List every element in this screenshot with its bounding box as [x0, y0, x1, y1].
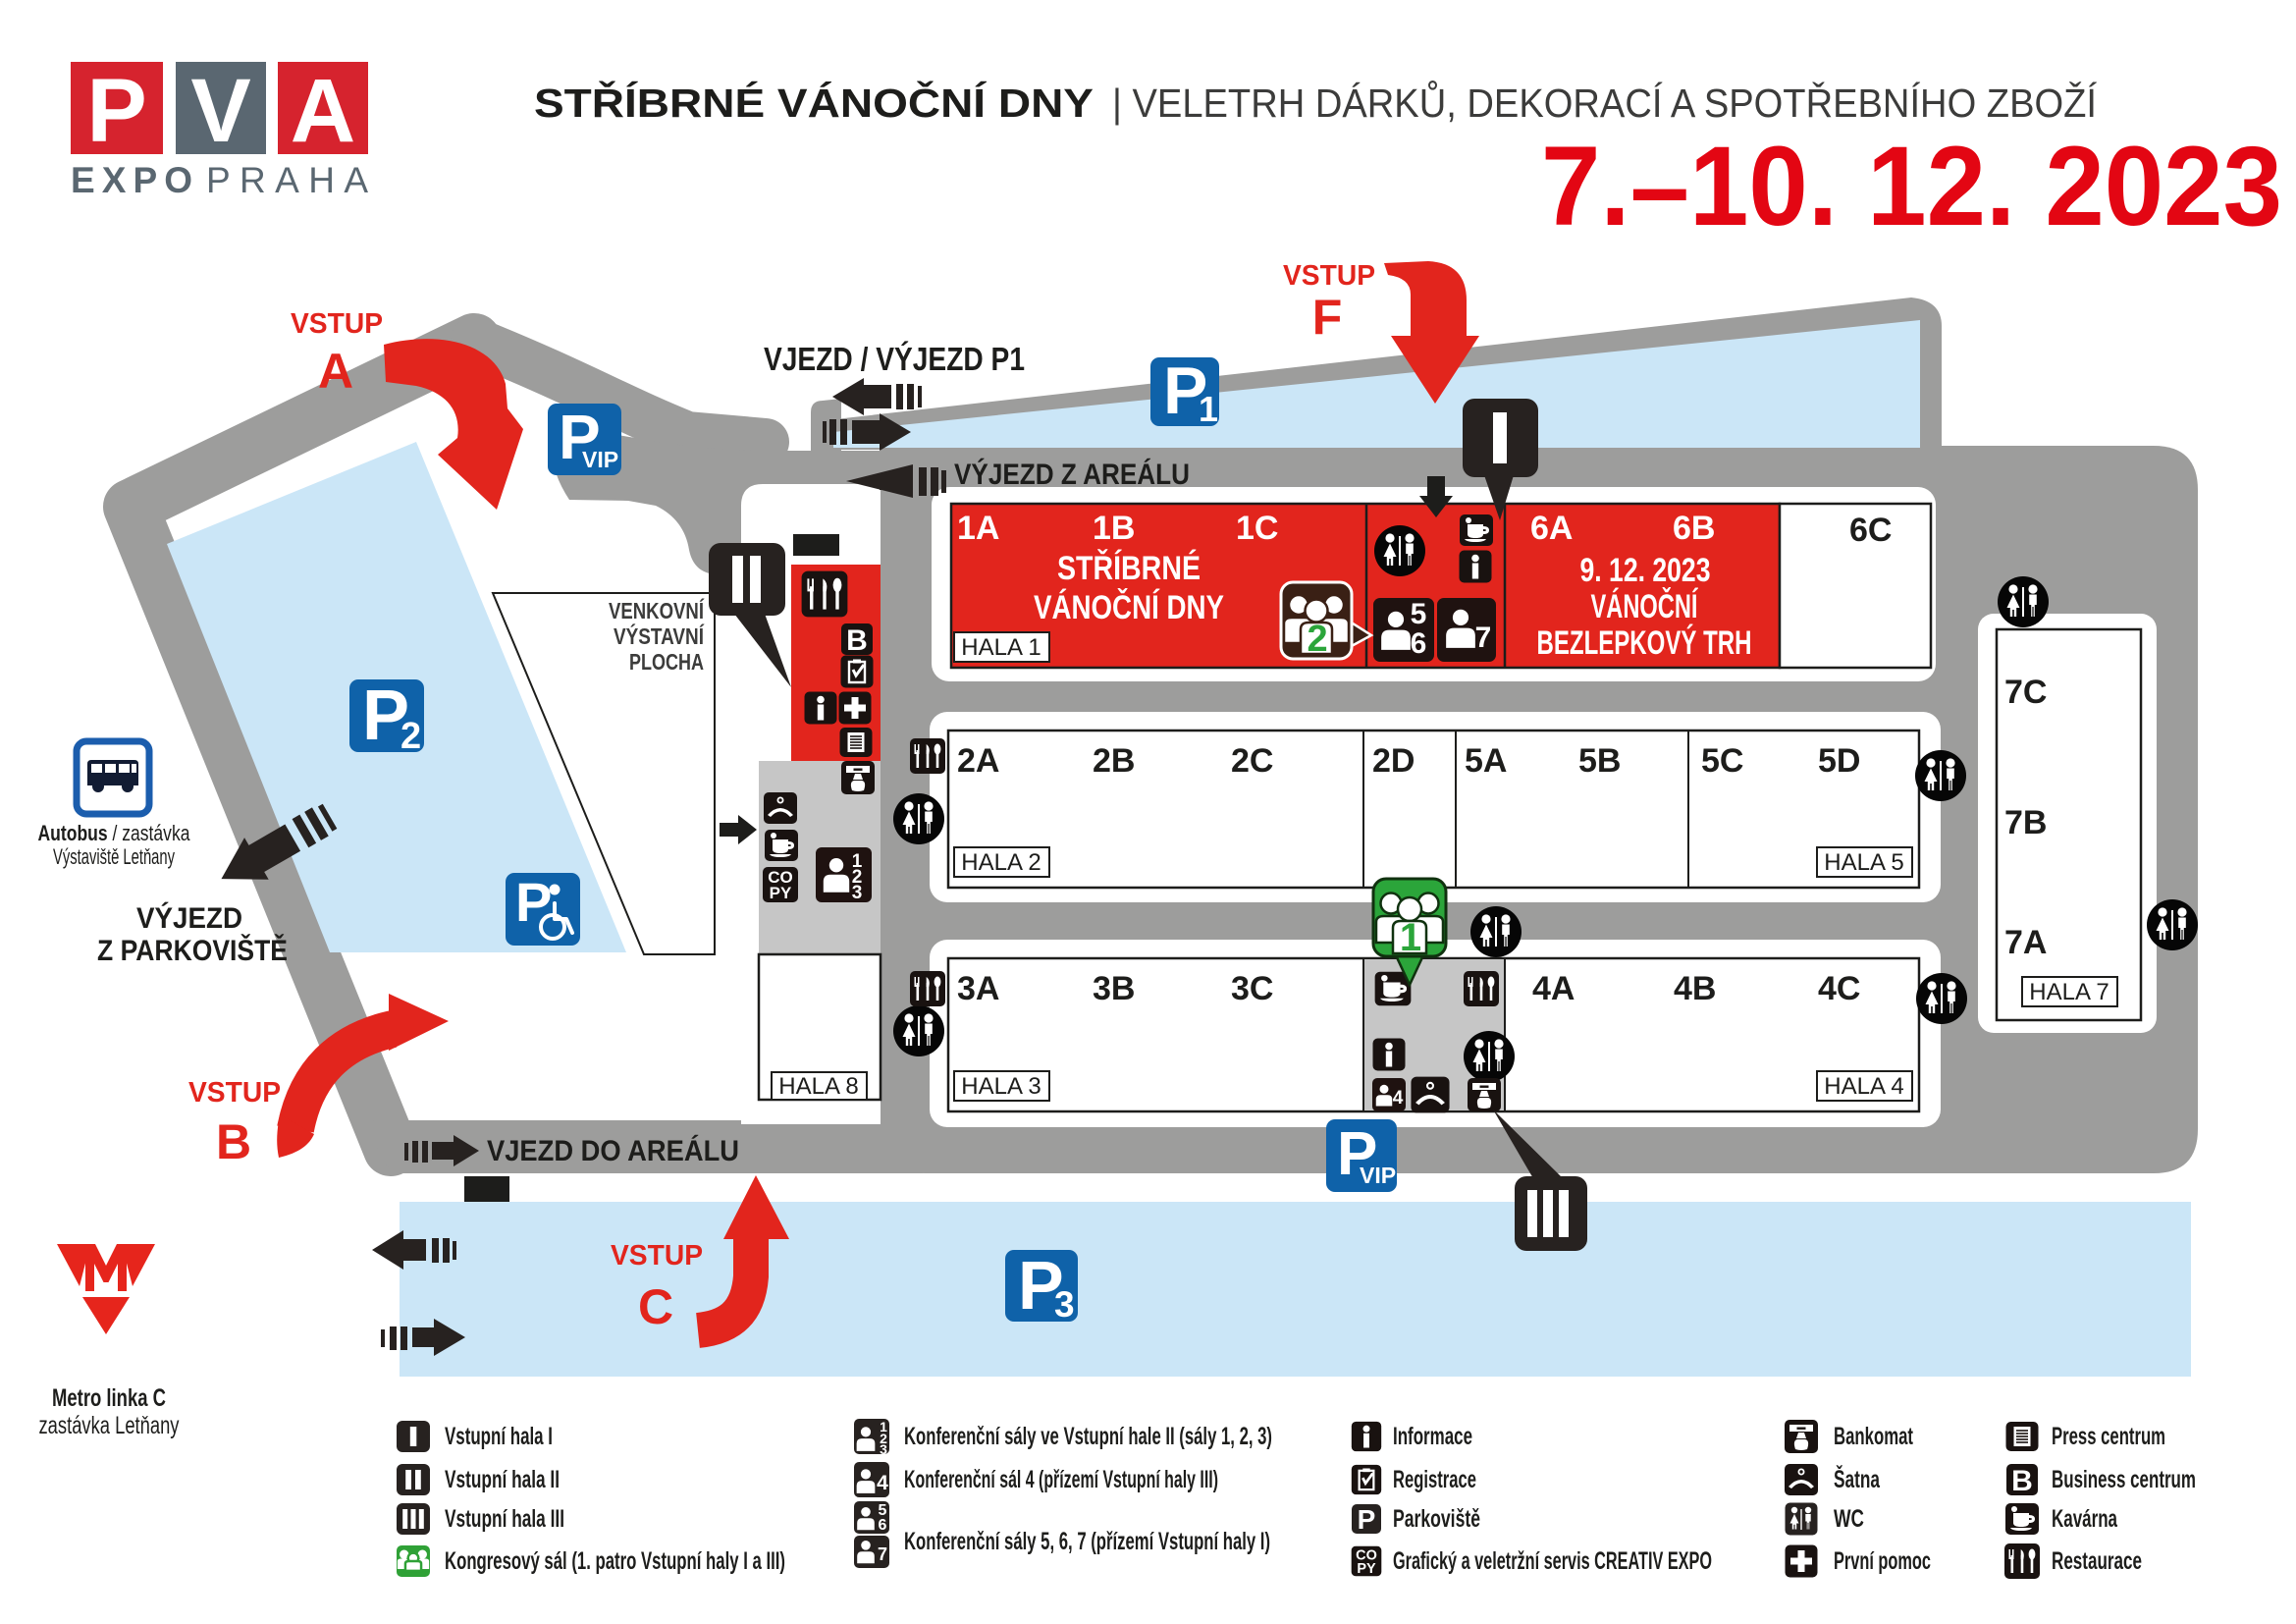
svg-text:2B: 2B [1093, 742, 1135, 780]
svg-text:Restaurace: Restaurace [2052, 1547, 2142, 1575]
svg-text:Informace: Informace [1393, 1423, 1472, 1450]
svg-text:VENKOVNÍ: VENKOVNÍ [609, 597, 704, 623]
svg-text:VSTUP: VSTUP [188, 1077, 281, 1109]
svg-text:VÝJEZD Z AREÁLU: VÝJEZD Z AREÁLU [954, 458, 1190, 491]
svg-text:VÝSTAVNÍ: VÝSTAVNÍ [614, 623, 705, 649]
svg-text:P: P [86, 61, 146, 161]
svg-text:4C: 4C [1818, 970, 1860, 1007]
svg-text:4: 4 [877, 1472, 888, 1494]
svg-text:4A: 4A [1532, 970, 1575, 1007]
svg-text:Z PARKOVIŠTĚ: Z PARKOVIŠTĚ [97, 934, 288, 967]
svg-text:6: 6 [1411, 627, 1427, 660]
svg-text:A: A [291, 61, 355, 161]
svg-text:Bankomat: Bankomat [1834, 1423, 1913, 1450]
svg-text:7: 7 [878, 1544, 887, 1564]
svg-text:6B: 6B [1673, 510, 1715, 547]
svg-text:C: C [638, 1279, 673, 1334]
svg-text:7: 7 [1475, 622, 1492, 654]
svg-text:7A: 7A [2004, 924, 2047, 961]
svg-text:STŘÍBRNÉ: STŘÍBRNÉ [1057, 550, 1201, 587]
svg-text:4: 4 [1393, 1088, 1404, 1109]
svg-text:1: 1 [1400, 916, 1421, 959]
svg-text:Business centrum: Business centrum [2052, 1466, 2196, 1493]
svg-text:9. 12. 2023: 9. 12. 2023 [1580, 552, 1711, 589]
svg-text:VÁNOČNÍ DNY: VÁNOČNÍ DNY [1034, 588, 1224, 626]
svg-text:A: A [318, 344, 353, 399]
svg-text:VSTUP: VSTUP [1283, 260, 1375, 292]
svg-text:VJEZD DO AREÁLU: VJEZD DO AREÁLU [487, 1134, 739, 1167]
svg-text:F: F [1312, 290, 1343, 345]
svg-text:P: P [515, 871, 552, 933]
svg-text:1: 1 [1199, 389, 1218, 429]
svg-text:2: 2 [1307, 619, 1327, 660]
svg-text:Konferenční sál 4 (přízemí Vst: Konferenční sál 4 (přízemí Vstupní haly … [904, 1466, 1218, 1493]
svg-text:STŘÍBRNÉ VÁNOČNÍ DNY: STŘÍBRNÉ VÁNOČNÍ DNY [534, 81, 1094, 126]
svg-text:Výstaviště Letňany: Výstaviště Letňany [53, 844, 175, 869]
svg-text:PLOCHA: PLOCHA [629, 649, 704, 675]
svg-text:Press centrum: Press centrum [2052, 1423, 2165, 1450]
svg-text:3: 3 [1054, 1284, 1075, 1325]
svg-text:HALA 4: HALA 4 [1824, 1073, 1903, 1100]
svg-text:HALA 8: HALA 8 [778, 1073, 858, 1100]
svg-text:První pomoc: První pomoc [1834, 1547, 1931, 1575]
svg-text:5C: 5C [1701, 742, 1743, 780]
svg-text:3B: 3B [1093, 970, 1135, 1007]
svg-text:VSTUP: VSTUP [611, 1240, 703, 1272]
svg-text:2A: 2A [957, 742, 999, 780]
svg-text:Grafický a veletržní servis CR: Grafický a veletržní servis CREATIV EXPO [1393, 1547, 1712, 1575]
svg-text:5B: 5B [1578, 742, 1621, 780]
svg-text:VÝJEZD: VÝJEZD [136, 901, 242, 935]
svg-text:V: V [190, 61, 250, 161]
svg-text:2D: 2D [1372, 742, 1415, 780]
svg-text:Kavárna: Kavárna [2052, 1505, 2118, 1533]
svg-text:1B: 1B [1093, 510, 1135, 547]
svg-text:Konferenční sály 5, 6, 7 (příz: Konferenční sály 5, 6, 7 (přízemí Vstupn… [904, 1528, 1270, 1555]
svg-text:Parkoviště: Parkoviště [1393, 1505, 1480, 1533]
svg-text:HALA 2: HALA 2 [961, 849, 1041, 876]
svg-text:7.–10. 12. 2023: 7.–10. 12. 2023 [1541, 124, 2282, 249]
svg-text:Vstupní hala II: Vstupní hala II [445, 1466, 560, 1493]
svg-text:Konferenční sály ve Vstupní ha: Konferenční sály ve Vstupní hale II (sál… [904, 1423, 1272, 1450]
svg-text:VIP: VIP [582, 447, 618, 472]
svg-text:HALA 3: HALA 3 [961, 1073, 1041, 1100]
svg-text:1A: 1A [957, 510, 999, 547]
svg-text:5A: 5A [1465, 742, 1507, 780]
svg-text:HALA 1: HALA 1 [961, 634, 1041, 661]
svg-text:6: 6 [879, 1517, 887, 1534]
svg-text:5: 5 [1411, 598, 1427, 630]
svg-text:5D: 5D [1818, 742, 1860, 780]
svg-text:VÁNOČNÍ: VÁNOČNÍ [1591, 587, 1699, 625]
svg-text:3: 3 [880, 1441, 887, 1457]
svg-text:6C: 6C [1849, 512, 1892, 549]
svg-text:3: 3 [852, 883, 863, 903]
svg-text:Vstupní hala I: Vstupní hala I [445, 1423, 553, 1450]
svg-text:VIP: VIP [1360, 1163, 1396, 1188]
svg-text:7B: 7B [2004, 804, 2047, 841]
svg-text:| VELETRH DÁRKŮ, DEKORACÍ A SP: | VELETRH DÁRKŮ, DEKORACÍ A SPOTŘEBNÍHO … [1112, 80, 2098, 126]
svg-text:4B: 4B [1674, 970, 1716, 1007]
svg-text:2C: 2C [1231, 742, 1273, 780]
svg-text:3A: 3A [957, 970, 999, 1007]
svg-text:6A: 6A [1530, 510, 1573, 547]
svg-text:2: 2 [400, 716, 421, 757]
svg-text:1C: 1C [1236, 510, 1278, 547]
svg-text:zastávka Letňany: zastávka Letňany [39, 1412, 180, 1439]
svg-text:3C: 3C [1231, 970, 1273, 1007]
svg-text:HALA 5: HALA 5 [1824, 849, 1903, 876]
svg-text:7C: 7C [2004, 674, 2047, 711]
svg-text:B: B [216, 1114, 251, 1169]
svg-text:BEZLEPKOVÝ TRH: BEZLEPKOVÝ TRH [1537, 624, 1752, 662]
svg-text:VJEZD / VÝJEZD P1: VJEZD / VÝJEZD P1 [764, 341, 1025, 377]
svg-text:Autobus / zastávka: Autobus / zastávka [38, 821, 191, 845]
svg-text:VSTUP: VSTUP [291, 308, 383, 340]
svg-text:Registrace: Registrace [1393, 1466, 1476, 1493]
svg-text:Metro linka C: Metro linka C [52, 1384, 166, 1412]
svg-text:HALA 7: HALA 7 [2029, 979, 2109, 1005]
svg-text:Šatna: Šatna [1834, 1464, 1881, 1493]
svg-text:WC: WC [1834, 1505, 1864, 1533]
svg-text:P: P [1358, 1504, 1376, 1535]
svg-text:Kongresový sál (1. patro Vstup: Kongresový sál (1. patro Vstupní haly I … [445, 1547, 785, 1575]
svg-text:Vstupní hala III: Vstupní hala III [445, 1505, 564, 1533]
